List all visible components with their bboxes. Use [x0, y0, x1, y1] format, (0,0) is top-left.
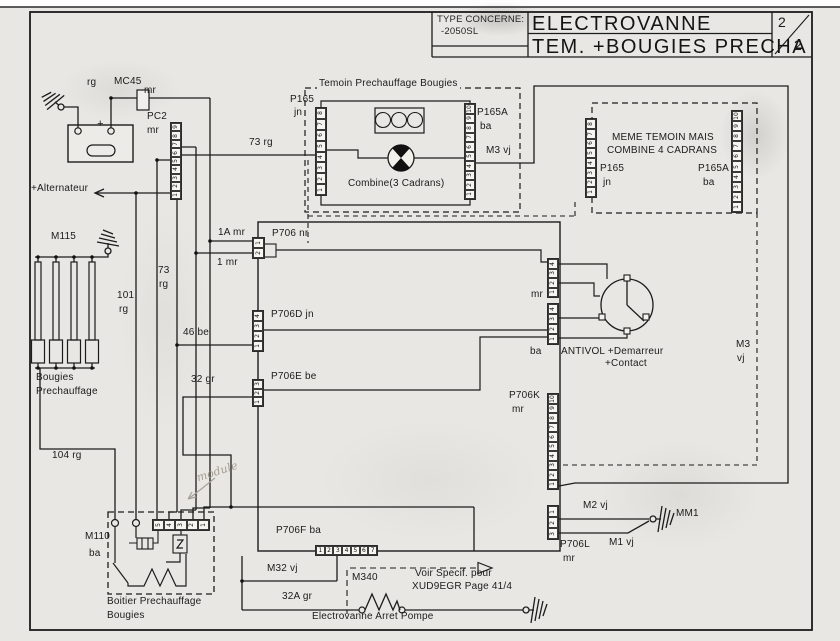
pin-cell: 2 [253, 248, 264, 258]
pin-cell: 7 [171, 140, 181, 148]
wire-color-p706k: mr [512, 405, 524, 415]
wire-label-1a-mr: 1A mr [218, 228, 245, 238]
wire-color-antivol-mr: mr [531, 290, 543, 300]
meme-temoin-line1: MEME TEMOIN MAIS [612, 133, 714, 143]
pin-cell: 9 [465, 114, 475, 124]
pin-cell: 4 [171, 165, 181, 173]
battery-minus: - [84, 120, 88, 131]
pin-cell: 1 [171, 191, 181, 199]
connector-strip-antivol-ba: 4321 [547, 303, 559, 345]
pin-cell: 6 [360, 546, 369, 555]
antivol-label-line1: ANTIVOL +Demarreur [561, 347, 663, 357]
pin-cell: 4 [316, 152, 326, 163]
component-label-m340: M340 [352, 573, 378, 583]
pin-cell: 5 [153, 520, 164, 530]
pin-cell: 8 [586, 119, 596, 129]
ground-label-m115: M115 [51, 232, 76, 242]
pin-cell: 6 [316, 130, 326, 141]
type-concerne-label: TYPE CONCERNE: [437, 15, 524, 25]
pin-cell: 1 [548, 480, 558, 490]
pin-cell: 5 [351, 546, 360, 555]
meme-temoin-line2: COMBINE 4 CADRANS [607, 146, 717, 156]
pin-cell: 3 [548, 528, 558, 539]
wire-color-p165: jn [294, 108, 302, 118]
alternateur-label: +Alternateur [31, 184, 88, 194]
connector-strip-p706: 12 [252, 237, 265, 259]
diagram-linework [0, 0, 840, 641]
combine-caption: Combine(3 Cadrans) [348, 179, 444, 189]
pin-cell: 4 [465, 161, 475, 171]
connector-label-p706k: P706K [509, 391, 540, 401]
connector-label-p706: P706 nr [272, 229, 308, 239]
pin-cell: 1 [316, 184, 326, 195]
pin-cell: 2 [325, 546, 334, 555]
pin-cell: 3 [333, 546, 342, 555]
connector-strip-p706k: 10987654321 [547, 393, 559, 490]
pin-cell: 5 [548, 442, 558, 452]
pin-cell: 1 [253, 238, 264, 248]
pin-cell: 7 [732, 141, 742, 151]
pin-cell: 6 [732, 151, 742, 161]
pin-cell: 3 [732, 182, 742, 192]
pin-cell: 4 [586, 158, 596, 168]
pin-cell: 1 [548, 506, 558, 517]
pin-cell: 3 [175, 520, 186, 530]
pin-cell: 2 [253, 331, 263, 341]
pin-cell: 1 [548, 334, 558, 344]
connector-strip-p165a-meme: 10987654321 [731, 110, 743, 213]
electrovanne-label: Electrovanne Arret Pompe [312, 612, 434, 622]
wire-color-pc2: mr [147, 126, 159, 136]
connector-strip-p706d: 4321 [252, 310, 264, 352]
wire-label-m2vj: M2 vj [583, 501, 608, 511]
pin-cell: 3 [171, 174, 181, 182]
connector-strip-p165a: 10987654321 [464, 103, 476, 200]
pin-cell: 4 [548, 259, 558, 269]
boitier-label-line1: Boitier Prechauffage [107, 597, 201, 607]
pin-cell: 9 [171, 123, 181, 131]
pin-cell: 5 [732, 161, 742, 171]
pin-cell: 4 [548, 304, 558, 314]
pin-cell: 1 [316, 546, 325, 555]
pin-cell: 5 [316, 141, 326, 152]
wire-color-p706l: mr [563, 554, 575, 564]
pin-cell: 2 [548, 324, 558, 334]
connector-strip-antivol-mr: 4321 [547, 258, 559, 298]
connector-label-mc45: MC45 [114, 77, 141, 87]
pin-cell: 8 [548, 413, 558, 423]
pin-cell: 6 [171, 148, 181, 156]
pin-cell: 7 [316, 119, 326, 130]
temoin-title: Temoin Prechauffage Bougies [317, 79, 460, 89]
connector-label-p165-meme: P165 [600, 164, 624, 174]
pin-cell: 1 [253, 397, 263, 406]
ground-label-mm1: MM1 [676, 509, 699, 519]
boitier-label-line2: Bougies [107, 611, 145, 621]
pin-cell: 3 [465, 171, 475, 181]
connector-label-p165a: P165A [477, 108, 508, 118]
wire-label-73rg-h: 73 rg [249, 138, 273, 148]
wire-label-1-mr: 1 mr [217, 258, 238, 268]
connector-strip-pc2: 987654321 [170, 122, 182, 200]
pin-cell: 8 [171, 131, 181, 139]
pin-cell: 4 [732, 172, 742, 182]
pin-cell: 5 [171, 157, 181, 165]
connector-strip-p706f: 1234567 [315, 545, 378, 556]
antivol-label-line2: +Contact [605, 359, 647, 369]
pin-cell: 1 [465, 190, 475, 200]
bougies-label-line2: Prechauffage [36, 387, 98, 397]
pin-cell: 3 [253, 380, 263, 389]
pin-cell: 5 [586, 148, 596, 158]
wire-color-p165a: ba [480, 122, 492, 132]
pin-cell: 7 [586, 129, 596, 139]
pin-cell: 3 [586, 168, 596, 178]
drawing-title-line2: TEM. +BOUGIES PRECHA [532, 37, 807, 57]
connector-strip-boitier: 54321 [152, 519, 210, 531]
voir-specif-line2: XUD9EGR Page 41/4 [412, 582, 512, 592]
pin-cell: 4 [342, 546, 351, 555]
wire-label-32gr: 32 gr [191, 375, 215, 385]
page-number: 2 [778, 15, 786, 29]
connector-label-p165: P165 [290, 95, 314, 105]
pin-cell: 9 [732, 121, 742, 131]
pin-cell: 2 [171, 182, 181, 190]
connector-strip-p706l: 123 [547, 505, 559, 540]
connector-label-p165a-meme: P165A [698, 164, 729, 174]
wire-label-104rg: 104 rg [52, 451, 82, 461]
ground-label-m110: M110 [85, 532, 110, 542]
pin-cell: 1 [198, 520, 209, 530]
pin-cell: 2 [253, 389, 263, 398]
bougies-label-line1: Bougies [36, 373, 74, 383]
pin-cell: 3 [548, 314, 558, 324]
type-concerne-value: -2050SL [441, 27, 478, 37]
pin-cell: 2 [732, 192, 742, 202]
pin-cell: 10 [548, 394, 558, 404]
pin-cell: 6 [465, 142, 475, 152]
pin-cell: 3 [548, 461, 558, 471]
pin-cell: 1 [253, 341, 263, 351]
pin-cell: 3 [316, 162, 326, 173]
connector-label-p706l: P706L [560, 540, 590, 550]
pin-cell: 10 [732, 111, 742, 121]
connector-label-p706e: P706E be [271, 372, 317, 382]
wire-color-101: rg [119, 305, 128, 315]
pin-cell: 2 [548, 517, 558, 528]
wire-color-73-v: rg [159, 280, 168, 290]
wire-label-m3vj-top: M3 vj [486, 146, 511, 156]
wire-label-73-v: 73 [158, 266, 170, 276]
wire-label-m3-right: M3 [734, 340, 752, 350]
pin-cell: 7 [368, 546, 377, 555]
pin-cell: 6 [586, 139, 596, 149]
connector-label-pc2: PC2 [147, 112, 167, 122]
wire-color-p165-meme: jn [603, 178, 611, 188]
wire-label-46be: 46 be [183, 328, 209, 338]
connector-strip-p706e: 321 [252, 379, 264, 407]
pin-cell: 4 [253, 311, 263, 321]
wire-color-p165a-meme: ba [703, 178, 715, 188]
wire-color-m3-right: vj [735, 354, 747, 364]
voir-specif-line1: Voir Specif. pour [415, 569, 492, 579]
pin-cell: 2 [316, 173, 326, 184]
wire-label-m1vj: M1 vj [609, 538, 634, 548]
battery-plus: + [97, 119, 104, 130]
pin-cell: 2 [586, 178, 596, 188]
pin-cell: 2 [187, 520, 198, 530]
wire-color-m110: ba [89, 549, 101, 559]
wire-label-m32vj: M32 vj [267, 564, 298, 574]
wire-color-mc45: mr [144, 86, 156, 96]
wire-label-32agr: 32A gr [282, 592, 312, 602]
pin-cell: 7 [548, 423, 558, 433]
pin-cell: 3 [548, 269, 558, 279]
connector-strip-p165: 87654321 [315, 107, 327, 196]
pin-cell: 2 [548, 278, 558, 288]
pin-cell: 1 [586, 187, 596, 197]
pin-cell: 2 [465, 180, 475, 190]
pin-cell: 8 [316, 108, 326, 119]
connector-label-p706d: P706D jn [271, 310, 314, 320]
wire-color-antivol-ba: ba [530, 347, 542, 357]
pin-cell: 1 [732, 202, 742, 212]
pin-cell: 8 [732, 131, 742, 141]
pin-cell: 4 [548, 451, 558, 461]
pin-cell: 9 [548, 404, 558, 414]
pin-cell: 3 [253, 321, 263, 331]
connector-strip-p165-meme: 87654321 [585, 118, 597, 198]
pin-cell: 8 [465, 123, 475, 133]
wire-label-rg: rg [87, 78, 96, 88]
wire-label-101: 101 [117, 291, 134, 301]
pin-cell: 4 [164, 520, 175, 530]
page-total: 2 [794, 38, 802, 52]
pin-cell: 10 [465, 104, 475, 114]
pin-cell: 1 [548, 288, 558, 298]
connector-label-p706f: P706F ba [276, 526, 321, 536]
pin-cell: 7 [465, 133, 475, 143]
pin-cell: 2 [548, 470, 558, 480]
drawing-title-line1: ELECTROVANNE [532, 14, 712, 34]
pin-cell: 5 [465, 152, 475, 162]
pin-cell: 6 [548, 432, 558, 442]
wiring-diagram-scan: TYPE CONCERNE: -2050SL ELECTROVANNE TEM.… [0, 0, 840, 641]
